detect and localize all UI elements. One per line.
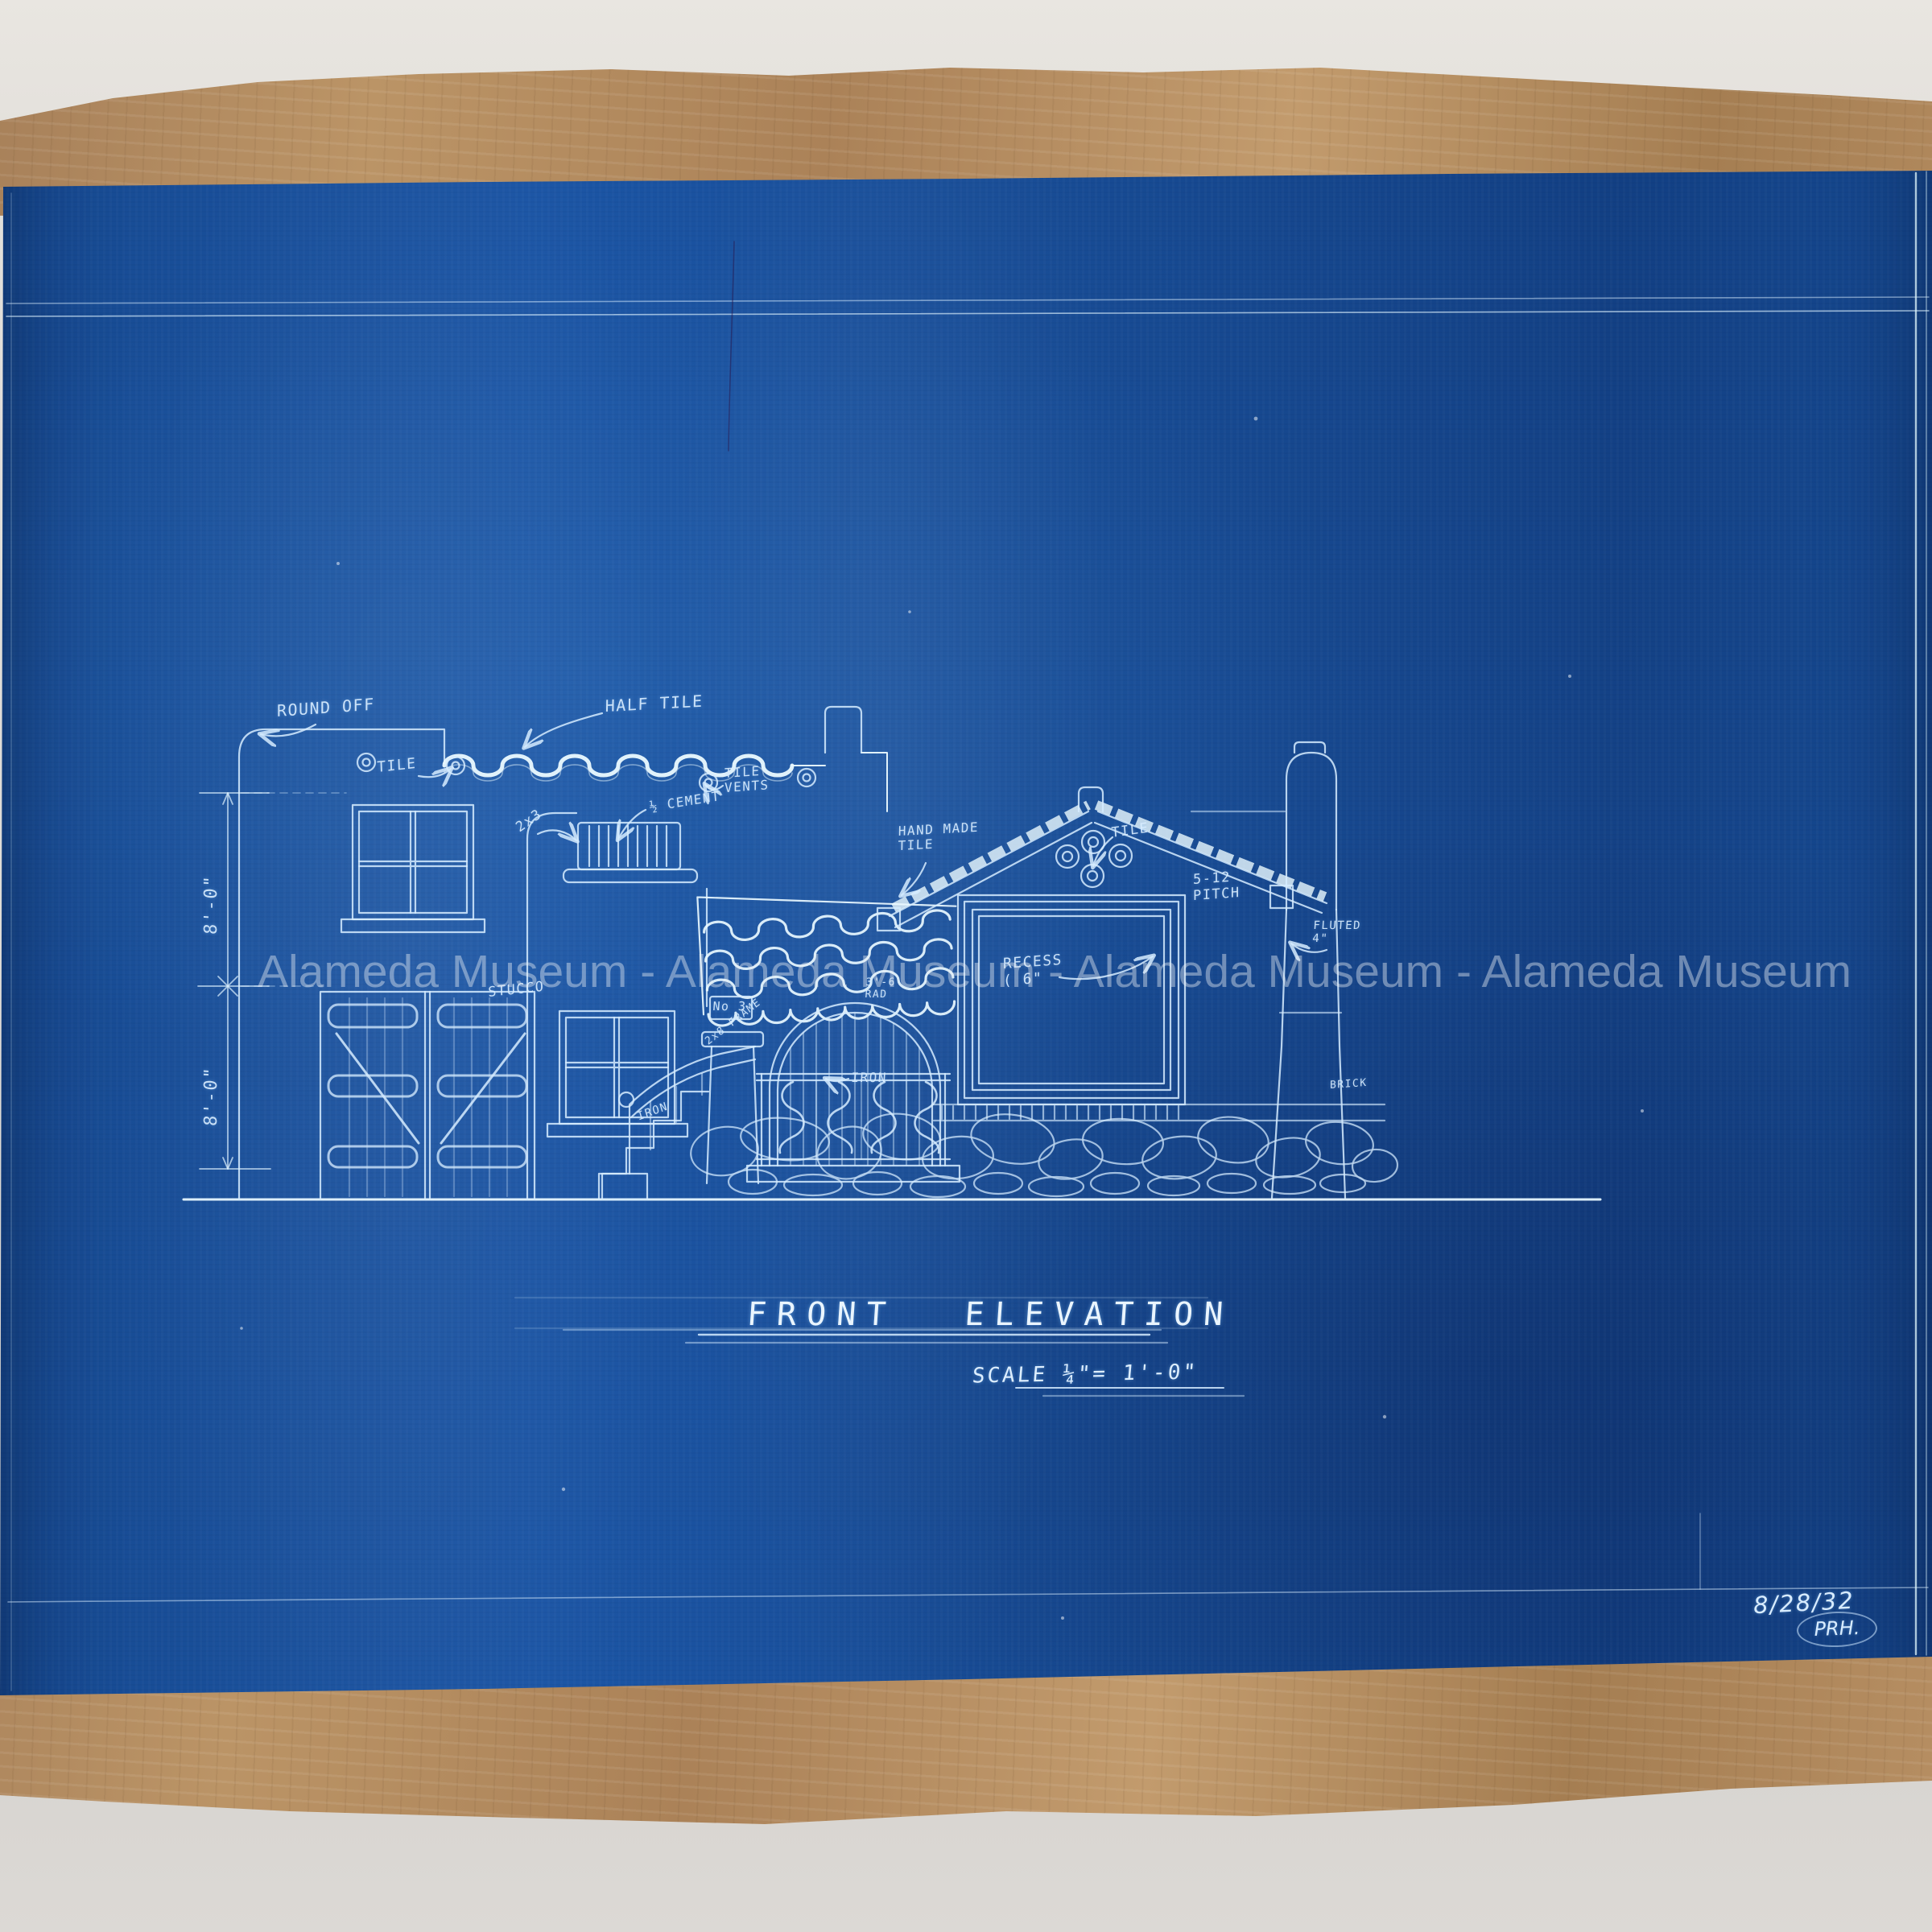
annotation-label: 8'-0" <box>201 874 221 935</box>
scale-note: SCALE ¼"= 1'-0" <box>971 1360 1199 1389</box>
annotation-label: FLUTED 4" <box>1312 919 1362 945</box>
dust-specks <box>240 417 1644 1620</box>
iron-balcony <box>747 1074 960 1182</box>
annotation-label: HAND MADE TILE <box>898 820 979 854</box>
picture-window <box>958 895 1185 1104</box>
photograph-of-blueprint: FRONT ELEVATION SCALE ¼"= 1'-0" 8/28/32 … <box>0 0 1932 1932</box>
louver-vent <box>563 823 697 882</box>
upper-window <box>341 805 485 932</box>
annotation-label: IRON <box>851 1071 888 1085</box>
annotation-label: 8'-0" <box>201 1066 221 1127</box>
border-lines <box>6 171 1929 1690</box>
annotation-label: TILE VENTS <box>724 763 770 796</box>
leader-arrows <box>261 713 1327 1081</box>
small-window <box>547 1011 687 1137</box>
watermark-text: Alameda Museum - Alameda Museum - Alamed… <box>258 945 1851 998</box>
dentil-course <box>934 1104 1385 1121</box>
stone-foundation <box>687 1108 1398 1197</box>
parapet-vent-box <box>825 707 861 753</box>
annotation-label: 5-12 PITCH <box>1193 869 1241 904</box>
garage-doors <box>320 992 535 1199</box>
drawing-title: FRONT ELEVATION <box>745 1296 1234 1333</box>
